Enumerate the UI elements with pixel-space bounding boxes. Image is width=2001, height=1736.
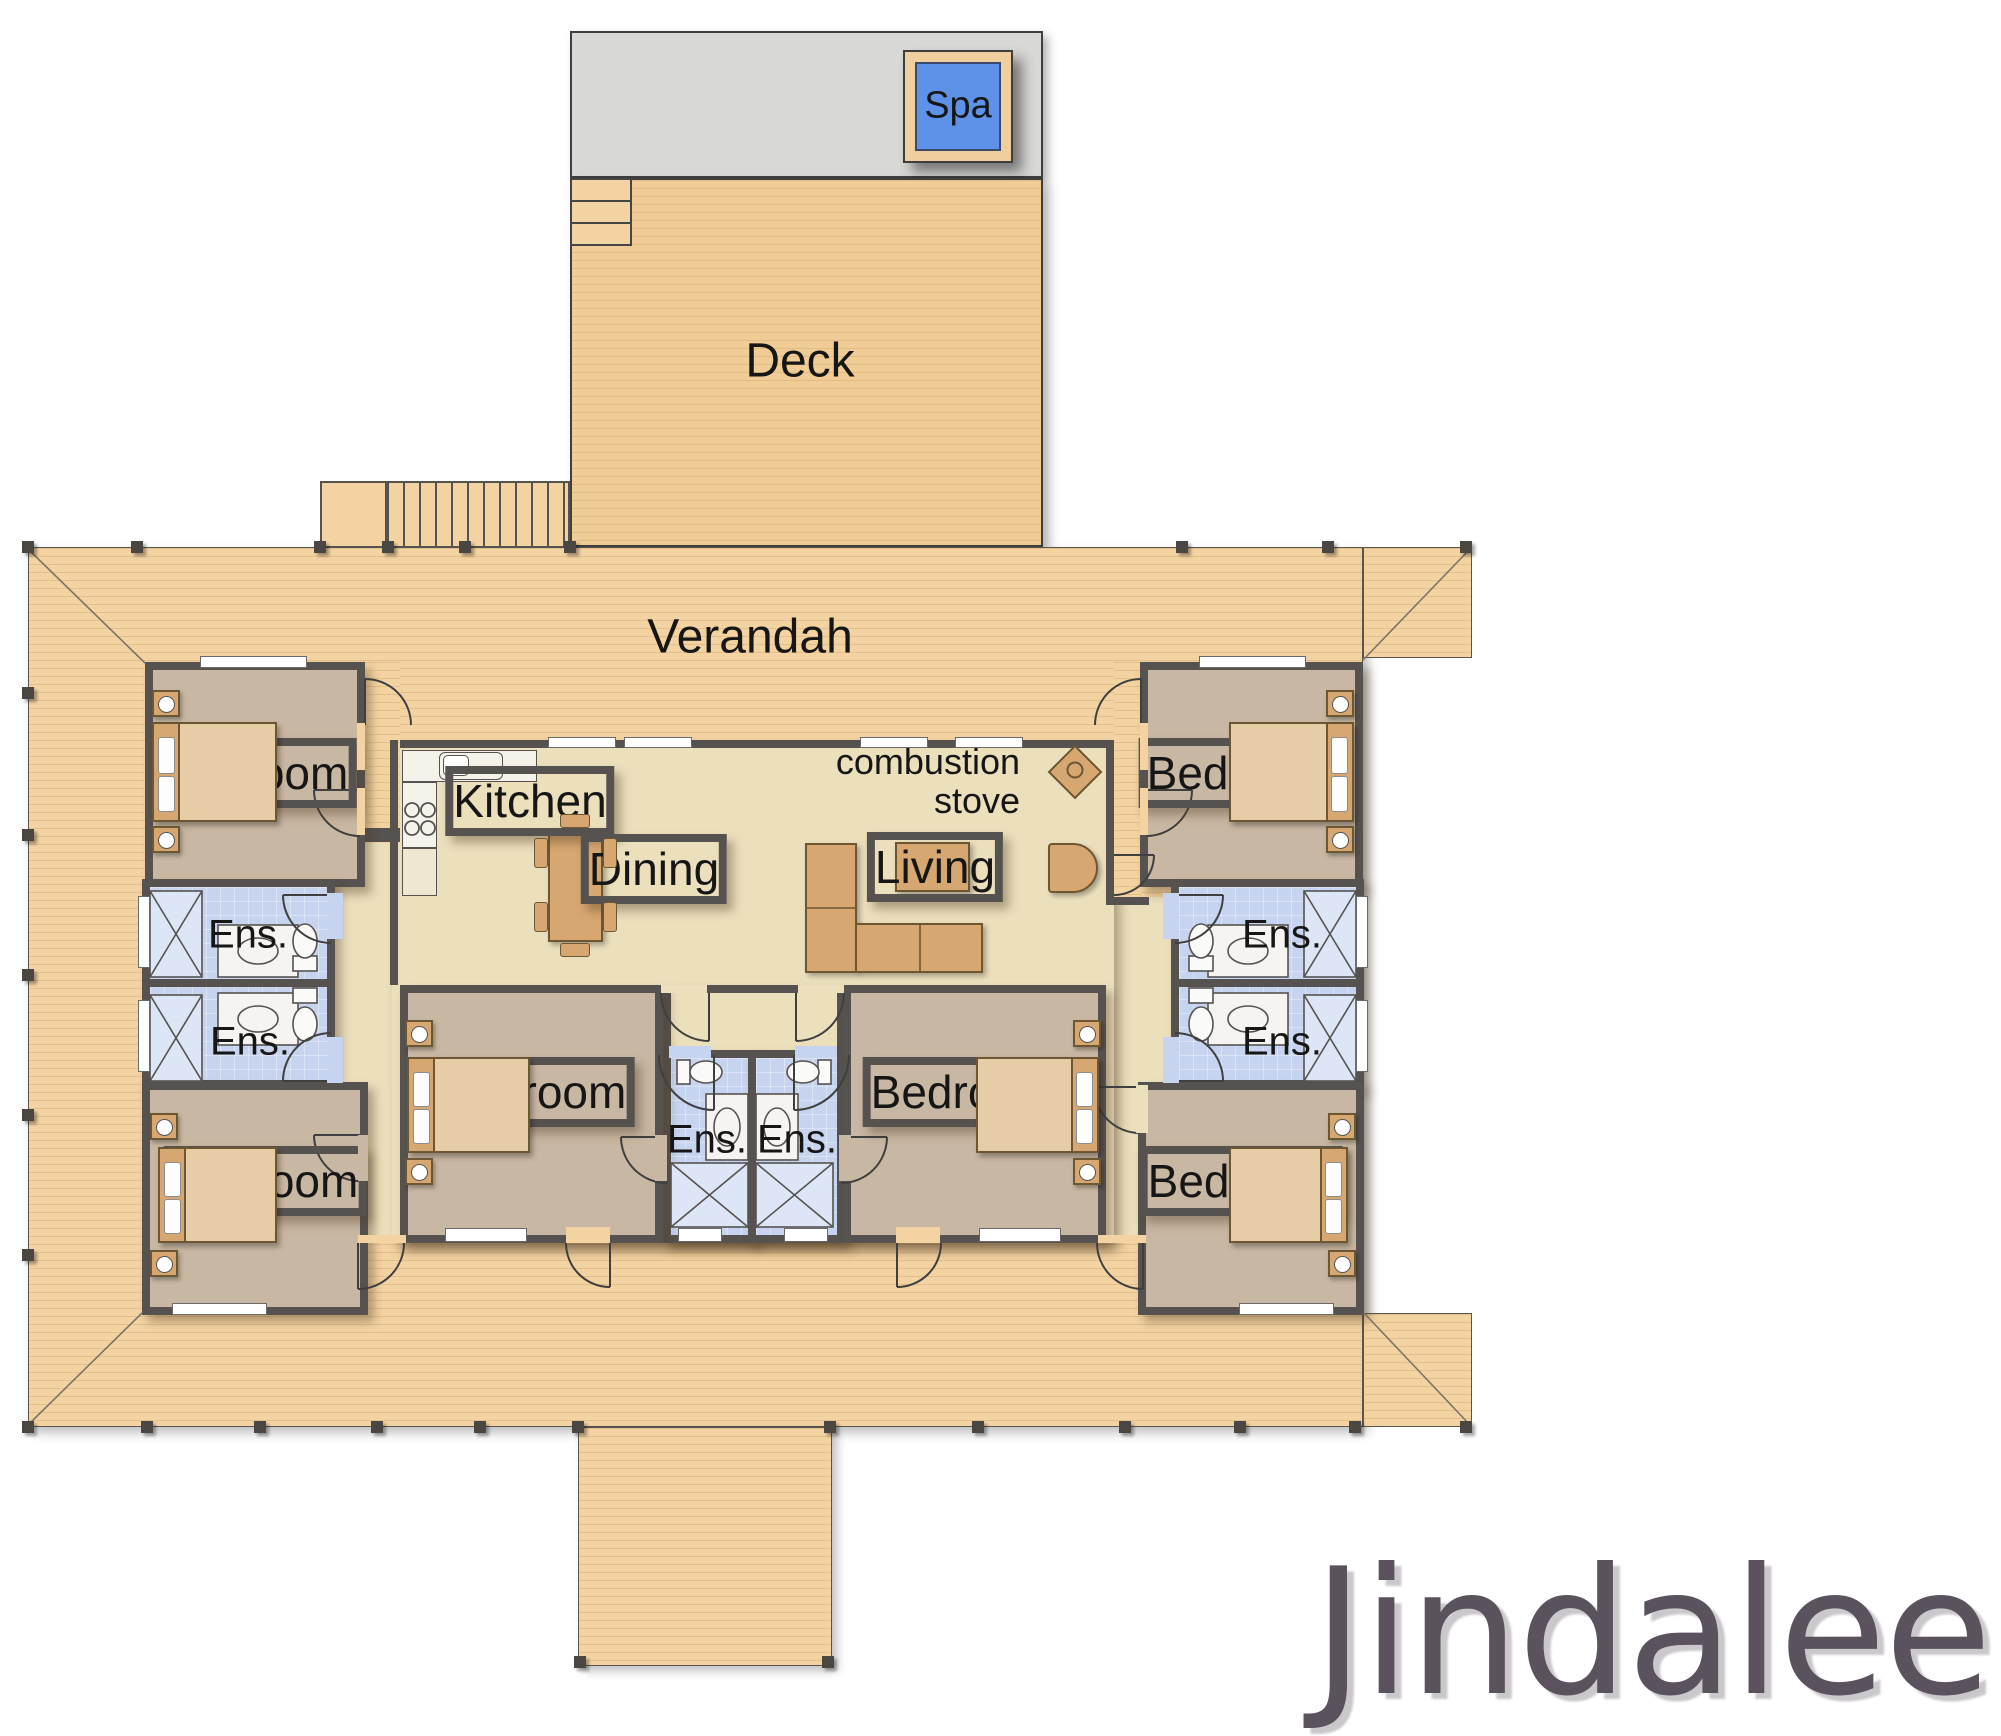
pillow-icon	[1331, 776, 1348, 813]
verandah-post-icon	[1176, 541, 1188, 553]
verandah-post-icon	[1322, 541, 1334, 553]
bedside-table-icon	[1073, 1020, 1101, 1047]
window-icon	[138, 1000, 150, 1072]
bedside-table-icon	[1326, 690, 1354, 717]
bedside-table-icon	[1326, 826, 1354, 853]
floor-plan: Deck Verandah Spa Kitchen Dining Living …	[0, 0, 2001, 1736]
verandah-post-icon	[1349, 1421, 1361, 1433]
window-icon	[1356, 1000, 1368, 1072]
ensuite-mid-right	[748, 1050, 845, 1243]
armchair	[1048, 843, 1098, 893]
bedside-table-icon	[150, 1250, 178, 1277]
dining-chair-icon	[534, 902, 548, 932]
plan-title: Jindalee	[1313, 1532, 1990, 1735]
window-icon	[1239, 1303, 1334, 1315]
verandah-bottom-right	[1363, 1313, 1472, 1427]
bedside-table-icon	[1328, 1250, 1356, 1277]
deck-steps-icon	[570, 178, 632, 246]
door-gap	[1140, 723, 1148, 770]
verandah-post-icon	[254, 1421, 266, 1433]
verandah-post-icon	[22, 969, 34, 981]
verandah-post-icon	[22, 1249, 34, 1261]
spa-water	[915, 62, 1001, 151]
sofa-bottom-arm	[855, 923, 983, 973]
kitchen-bench	[402, 782, 437, 848]
verandah-post-icon	[141, 1421, 153, 1433]
window-icon	[138, 896, 150, 968]
verandah-post-icon	[459, 541, 471, 553]
dining-chair-icon	[560, 814, 590, 828]
bedside-table-icon	[150, 1113, 178, 1140]
door-gap	[655, 1135, 667, 1181]
door-gap	[795, 1046, 837, 1058]
door-gap	[357, 788, 365, 835]
window-icon	[172, 1303, 267, 1315]
verandah-post-icon	[382, 541, 394, 553]
verandah-post-icon	[1119, 1421, 1131, 1433]
ensuite-mid-left	[663, 1050, 756, 1243]
stair-landing	[320, 481, 387, 548]
deck	[570, 178, 1043, 547]
window-icon	[784, 1228, 828, 1242]
door-gap	[798, 985, 844, 993]
door-gap	[1098, 1235, 1146, 1243]
bed-icon	[1229, 722, 1354, 822]
verandah-post-icon	[22, 1109, 34, 1121]
verandah-post-icon	[22, 1421, 34, 1433]
porch-right	[1114, 662, 1141, 905]
verandah-post-icon	[371, 1421, 383, 1433]
window-icon	[200, 656, 307, 668]
bed-icon	[158, 1147, 277, 1243]
pillow-icon	[1325, 1199, 1342, 1234]
bed-icon	[1229, 1147, 1348, 1243]
spa	[903, 50, 1013, 163]
verandah-post-icon	[314, 541, 326, 553]
verandah-post-icon	[22, 687, 34, 699]
pillow-icon	[158, 776, 175, 813]
window-icon	[445, 1228, 527, 1242]
door-gap	[1140, 788, 1148, 835]
dining-chair-icon	[603, 902, 617, 932]
door-gap	[1163, 1037, 1179, 1083]
verandah-top-right	[1363, 547, 1472, 658]
verandah-post-icon	[1460, 541, 1472, 553]
verandah-post-icon	[822, 1656, 834, 1668]
bedside-table-icon	[152, 690, 180, 717]
door-gap	[358, 1135, 368, 1181]
door-gap	[1163, 893, 1179, 939]
verandah-post-icon	[474, 1421, 486, 1433]
verandah-post-icon	[972, 1421, 984, 1433]
door-gap	[1136, 1085, 1148, 1133]
bed-icon	[152, 722, 277, 822]
coffee-table	[895, 842, 970, 892]
door-gap	[896, 1227, 940, 1243]
bedside-table-icon	[405, 1158, 433, 1185]
door-gap	[661, 985, 707, 993]
window-icon	[548, 737, 616, 748]
window-icon	[624, 737, 692, 748]
dining-chair-icon	[560, 943, 590, 957]
bedside-table-icon	[405, 1020, 433, 1047]
pillow-icon	[158, 737, 175, 774]
window-icon	[1356, 896, 1368, 968]
door-gap	[669, 1046, 711, 1058]
pillow-icon	[164, 1162, 181, 1197]
verandah-post-icon	[131, 541, 143, 553]
verandah-post-icon	[22, 541, 34, 553]
door-gap	[358, 1235, 406, 1243]
kitchen-appliance	[402, 848, 437, 896]
wall-kitchen-west	[390, 740, 398, 985]
bedside-table-icon	[1073, 1158, 1101, 1185]
door-gap	[357, 723, 365, 770]
wall-ensuite-left-divider	[150, 979, 327, 987]
bedside-table-icon	[1328, 1113, 1356, 1140]
verandah-stairs-icon	[385, 481, 570, 548]
kitchen-sink-basin	[443, 755, 469, 776]
pillow-icon	[1076, 1109, 1093, 1144]
verandah-post-icon	[1460, 1421, 1472, 1433]
pillow-icon	[413, 1072, 430, 1107]
dining-table	[548, 828, 603, 942]
verandah-post-icon	[564, 541, 576, 553]
pillow-icon	[1076, 1072, 1093, 1107]
verandah-post-icon	[574, 1656, 586, 1668]
verandah-post-icon	[22, 829, 34, 841]
dining-chair-icon	[603, 838, 617, 868]
window-icon	[1199, 656, 1306, 668]
verandah-post-icon	[1234, 1421, 1246, 1433]
bedside-table-icon	[152, 826, 180, 853]
window-icon	[955, 737, 1023, 748]
window-icon	[979, 1228, 1061, 1242]
pillow-icon	[1331, 737, 1348, 774]
window-icon	[860, 737, 928, 748]
door-gap	[327, 893, 343, 939]
wall-ensuite-right-divider	[1179, 979, 1356, 987]
door-gap	[566, 1227, 610, 1243]
bed-icon	[976, 1057, 1099, 1153]
verandah-post-icon	[572, 1421, 584, 1433]
door-gap	[839, 1135, 851, 1181]
verandah-post-icon	[824, 1421, 836, 1433]
pillow-icon	[164, 1199, 181, 1234]
pillow-icon	[413, 1109, 430, 1144]
wall-porch-right-stub	[1106, 897, 1149, 905]
bed-icon	[407, 1057, 530, 1153]
walkway	[578, 1427, 832, 1666]
door-gap	[327, 1037, 343, 1083]
wall-living-east	[1106, 740, 1114, 905]
pillow-icon	[1325, 1162, 1342, 1197]
dining-chair-icon	[534, 838, 548, 868]
window-icon	[678, 1228, 722, 1242]
sofa-left-arm	[805, 843, 857, 973]
